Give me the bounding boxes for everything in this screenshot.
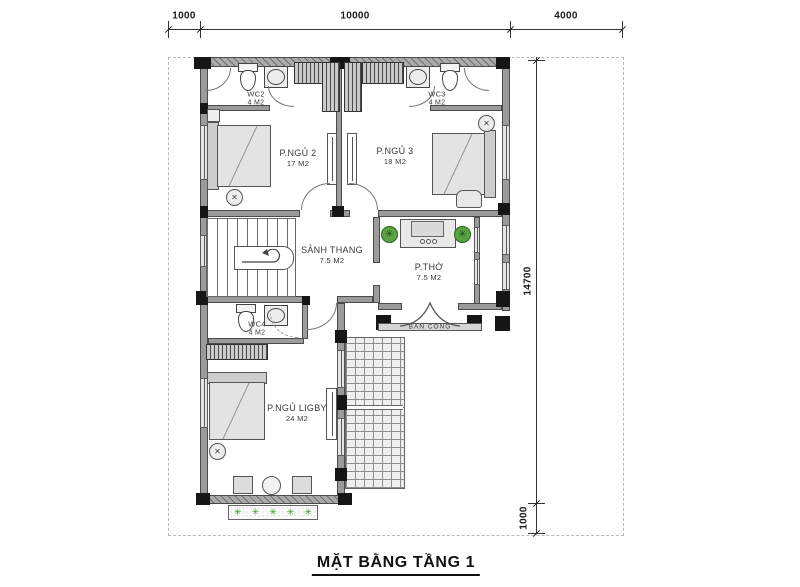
closet-center-left <box>322 62 340 112</box>
plant-icon: ✳ <box>287 508 295 517</box>
column <box>335 468 347 481</box>
bed <box>432 133 486 195</box>
column <box>338 493 352 505</box>
wall-hall-south-w <box>200 296 307 303</box>
dim-top-4000: 4000 <box>554 11 577 22</box>
ceiling-fan-icon: ✕ <box>478 115 495 132</box>
wall-worship-west-upper <box>373 217 380 263</box>
column <box>332 206 344 217</box>
bed <box>217 125 271 187</box>
label-wc2: WC2 4 M2 <box>247 90 265 107</box>
plant-icon: ✳ <box>454 226 471 243</box>
incense-bowl <box>426 239 431 244</box>
sink-icon <box>406 66 430 88</box>
incense-bowl <box>432 239 437 244</box>
wall-bedrooms-south-e <box>378 210 502 217</box>
closet-master <box>206 344 268 360</box>
porch-column-square <box>292 476 312 494</box>
dim-top-10000: 10000 <box>340 11 369 22</box>
window <box>337 418 345 456</box>
tv-console <box>326 388 337 440</box>
plant-icon: ✳ <box>304 508 312 517</box>
incense-bowl <box>420 239 425 244</box>
column <box>498 203 510 215</box>
window <box>502 225 510 255</box>
wall-hall-south-e <box>337 296 373 303</box>
label-bedroom-master: P.NGỦ LIGBY 24 M2 <box>267 403 327 423</box>
plant-icon: ✳ <box>381 226 398 243</box>
column-balcony <box>495 316 510 331</box>
porch-column-round <box>262 476 281 495</box>
bed-headboard <box>484 130 496 198</box>
page-title: MẶT BẰNG TẦNG 1 <box>312 554 480 576</box>
ceiling-fan-icon: ✕ <box>226 189 243 206</box>
label-bedroom3: P.NGỦ 3 18 M2 <box>377 146 414 166</box>
column <box>335 330 347 343</box>
window <box>474 227 480 253</box>
label-wc3: WC3 4 M2 <box>428 90 446 107</box>
porch-column-square <box>233 476 253 494</box>
stone-walkway <box>345 337 405 489</box>
stair-direction-arrow <box>240 249 290 266</box>
plant-icon: ✳ <box>269 508 277 517</box>
label-worship-room: P.THỜ 7.5 M2 <box>415 262 444 282</box>
floor-plan-sheet: 1000 10000 4000 14700 1000 <box>0 0 800 587</box>
ceiling-fan-icon: ✕ <box>209 443 226 460</box>
column <box>496 291 510 307</box>
label-bedroom2: P.NGỦ 2 17 M2 <box>280 148 317 168</box>
window <box>337 350 345 388</box>
tv-console <box>327 133 337 185</box>
wall-worship-west-lower <box>373 285 380 303</box>
dim-right-1000: 1000 <box>519 506 530 529</box>
window <box>502 262 510 290</box>
window <box>502 125 510 180</box>
dimension-line <box>168 29 623 30</box>
sink-icon <box>264 66 288 88</box>
dim-right-14700: 14700 <box>523 266 534 295</box>
window <box>474 259 480 285</box>
bed <box>209 382 265 440</box>
column <box>496 57 510 69</box>
closet-bedroom3 <box>362 62 404 84</box>
plant-icon: ✳ <box>234 508 242 517</box>
dim-top-1000: 1000 <box>172 11 195 22</box>
walkway-joint <box>345 405 403 410</box>
label-stair-hall: SẢNH THANG 7.5 M2 <box>301 245 363 265</box>
dimension-line <box>536 57 537 534</box>
wall-south <box>200 495 352 504</box>
column <box>200 206 208 218</box>
armchair <box>456 190 482 208</box>
tv-console <box>347 133 357 185</box>
wall-bedrooms-south-w <box>200 210 300 217</box>
column <box>196 493 210 505</box>
planter-box: ✳ ✳ ✳ ✳ ✳ <box>228 505 318 520</box>
closet-center-right <box>344 62 362 112</box>
nightstand <box>207 109 220 122</box>
window <box>200 378 208 428</box>
label-balcony: BAN CÔNG <box>409 324 452 331</box>
label-wc4: WC4 4 M2 <box>248 320 266 337</box>
plant-icon: ✳ <box>252 508 260 517</box>
altar-top <box>411 221 444 237</box>
